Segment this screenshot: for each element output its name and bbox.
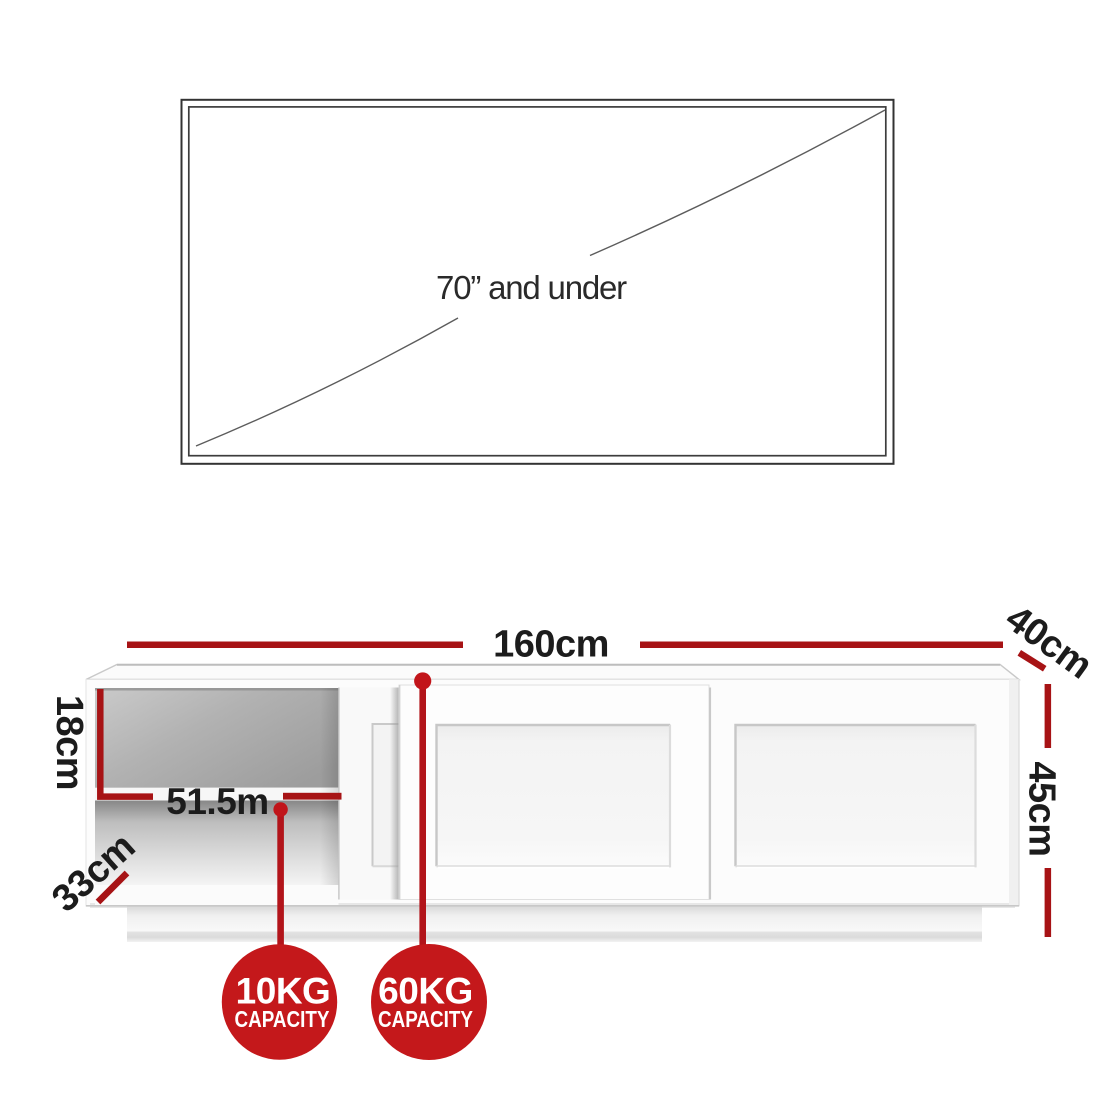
svg-text:51.5m: 51.5m	[166, 781, 268, 822]
svg-text:CAPACITY: CAPACITY	[378, 1007, 473, 1032]
svg-text:160cm: 160cm	[493, 624, 609, 666]
svg-text:70” and under: 70” and under	[436, 269, 627, 306]
svg-text:CAPACITY: CAPACITY	[235, 1007, 330, 1032]
svg-text:18cm: 18cm	[48, 695, 90, 790]
svg-text:10KG: 10KG	[236, 971, 331, 1012]
svg-text:45cm: 45cm	[1021, 761, 1063, 856]
svg-text:60KG: 60KG	[378, 971, 473, 1012]
